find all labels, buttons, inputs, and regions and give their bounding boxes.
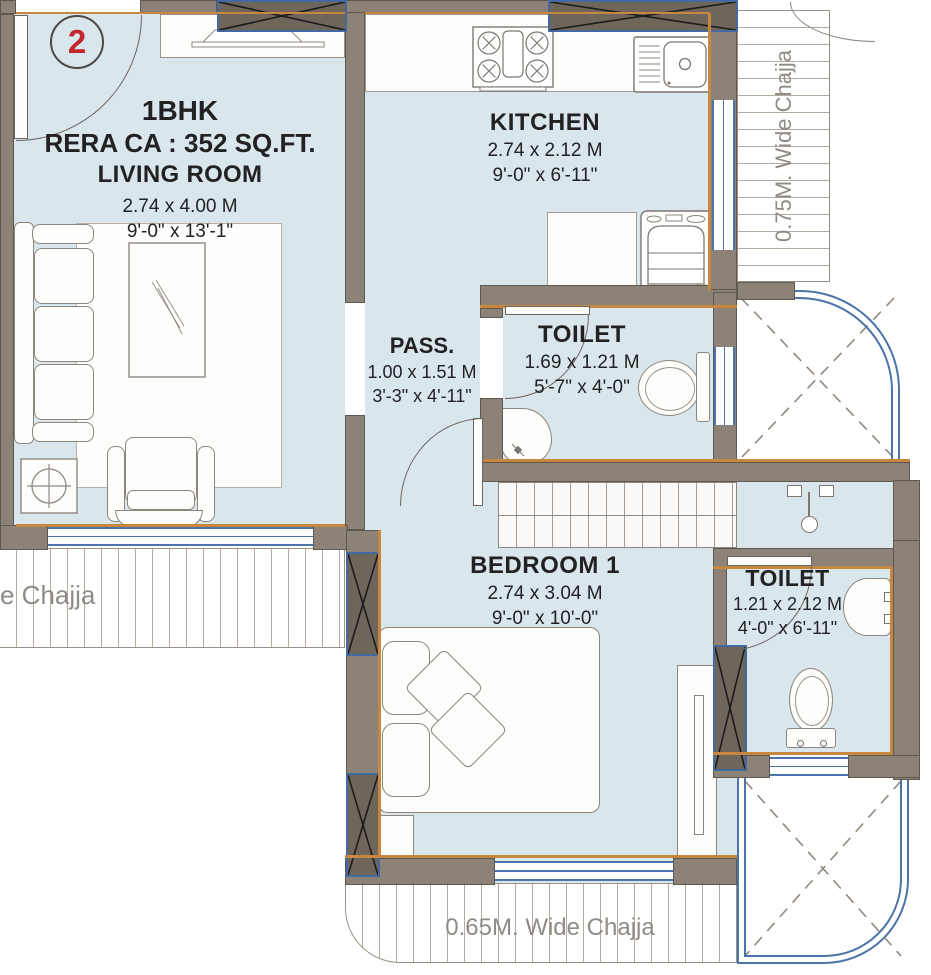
- wall: [893, 540, 920, 780]
- accent-line: [16, 12, 345, 14]
- room-dim-ft: 3'-3" x 4'-11": [342, 386, 502, 408]
- room-dim-ft: 9'-0" x 10'-0": [420, 607, 670, 630]
- window: [770, 757, 848, 776]
- room-name: BEDROOM 1: [420, 551, 670, 580]
- void-cross-icon: [739, 775, 907, 962]
- chajja-bottom-label: 0.65M. Wide Chajja: [400, 913, 700, 942]
- floor-plan: 0.75M. Wide Chajja e Chajja 0.65M. Wide …: [0, 0, 931, 975]
- coffee-table: [128, 242, 206, 378]
- kitchen-label: KITCHEN 2.74 x 2.12 M 9'-0" x 6'-11": [420, 108, 670, 188]
- void-cross-icon: [737, 292, 898, 464]
- room-dim-m: 1.69 x 1.21 M: [482, 351, 682, 374]
- room-name: KITCHEN: [420, 108, 670, 137]
- wc-tank: [696, 352, 710, 422]
- room-name: TOILET: [700, 564, 875, 592]
- accent-line: [365, 12, 710, 14]
- unit-number-badge: 2: [50, 15, 104, 69]
- accent-line: [713, 752, 893, 755]
- passage-label: PASS. 1.00 x 1.51 M 3'-3" x 4'-11": [342, 333, 502, 408]
- shower-knob-icon: [819, 485, 834, 497]
- shower-knob-icon: [787, 485, 802, 497]
- shower-head-icon: [801, 516, 818, 533]
- wall: [480, 308, 503, 318]
- toilet1-door-leaf: [505, 306, 590, 315]
- sofa-back: [14, 222, 34, 444]
- bedroom-label: BEDROOM 1 2.74 x 3.04 M 9'-0" x 10'-0": [420, 551, 670, 631]
- void-bottom-right: [737, 775, 909, 964]
- wall: [673, 858, 737, 885]
- pillow: [382, 723, 430, 797]
- wall: [737, 282, 795, 300]
- wall: [345, 12, 365, 303]
- stove: [472, 26, 554, 92]
- toilet1-label: TOILET 1.69 x 1.21 M 5'-7" x 4'-0": [482, 320, 682, 400]
- accent-line: [345, 855, 737, 858]
- wall: [0, 0, 16, 14]
- sofa-seat: [34, 364, 94, 420]
- room-dim-m: 1.00 x 1.51 M: [342, 362, 502, 384]
- room-dim-ft: 9'-0" x 6'-11": [420, 164, 670, 187]
- wc-dot: [820, 740, 827, 747]
- room-dim-ft: 5'-7" x 4'-0": [482, 376, 682, 399]
- room-name: TOILET: [482, 320, 682, 349]
- wardrobe-midline: [499, 515, 736, 516]
- wall: [893, 480, 920, 548]
- room-dim-ft: 4'-0" x 6'-11": [700, 618, 875, 640]
- room-dim-m: 2.74 x 3.04 M: [420, 582, 670, 605]
- window: [495, 861, 673, 881]
- void-top-right: [737, 290, 900, 464]
- tv-panel: [694, 695, 704, 835]
- wall: [345, 415, 365, 530]
- column: [217, 0, 347, 32]
- fridge: [640, 210, 713, 292]
- kitchen-platform: [547, 212, 637, 290]
- accent-line: [378, 530, 381, 858]
- chajja-right-label: 0.75M. Wide Chajja: [771, 50, 797, 242]
- wc-dot: [797, 740, 804, 747]
- chajja-left-label: e Chajja: [0, 580, 110, 612]
- rera-area: RERA CA : 352 SQ.FT.: [30, 128, 330, 160]
- corner-table: [20, 458, 78, 514]
- wc-tank: [786, 728, 836, 748]
- room-dim-m: 2.74 x 2.12 M: [420, 139, 670, 162]
- window: [714, 347, 735, 425]
- living-room-label: 1BHK RERA CA : 352 SQ.FT. LIVING ROOM 2.…: [30, 94, 330, 243]
- room-name: PASS.: [342, 333, 502, 360]
- sofa-armrest-bottom: [32, 422, 94, 442]
- room-name: LIVING ROOM: [30, 160, 330, 189]
- unit-number: 2: [68, 23, 86, 61]
- chajja-right-label-wrap: 0.75M. Wide Chajja: [737, 10, 830, 282]
- wc-bowl-inner: [795, 676, 829, 726]
- room-dim-m: 1.21 x 2.12 M: [700, 594, 875, 616]
- wardrobe: [498, 482, 737, 548]
- unit-type: 1BHK: [30, 94, 330, 128]
- wall: [848, 755, 920, 778]
- window: [48, 527, 313, 546]
- faucet-icon: [512, 444, 524, 456]
- wall: [0, 14, 14, 530]
- armchair-front-cushion: [127, 490, 195, 510]
- accent-line: [708, 14, 711, 290]
- room-dim-ft: 9'-0" x 13'-1": [30, 220, 330, 243]
- wall: [0, 525, 48, 550]
- sofa-seat: [34, 248, 94, 304]
- column: [346, 552, 380, 656]
- toilet2-label: TOILET 1.21 x 2.12 M 4'-0" x 6'-11": [700, 564, 875, 640]
- wall: [313, 525, 348, 550]
- accent-line: [890, 568, 893, 755]
- window: [712, 100, 735, 250]
- shower-pipe: [808, 492, 810, 518]
- sofa-seat: [34, 306, 94, 362]
- accent-line: [480, 459, 910, 462]
- wall: [480, 462, 910, 482]
- kitchen-sink: [633, 36, 711, 93]
- duct-floor: [737, 482, 893, 548]
- room-dim-m: 2.74 x 4.00 M: [30, 195, 330, 218]
- column: [346, 773, 380, 877]
